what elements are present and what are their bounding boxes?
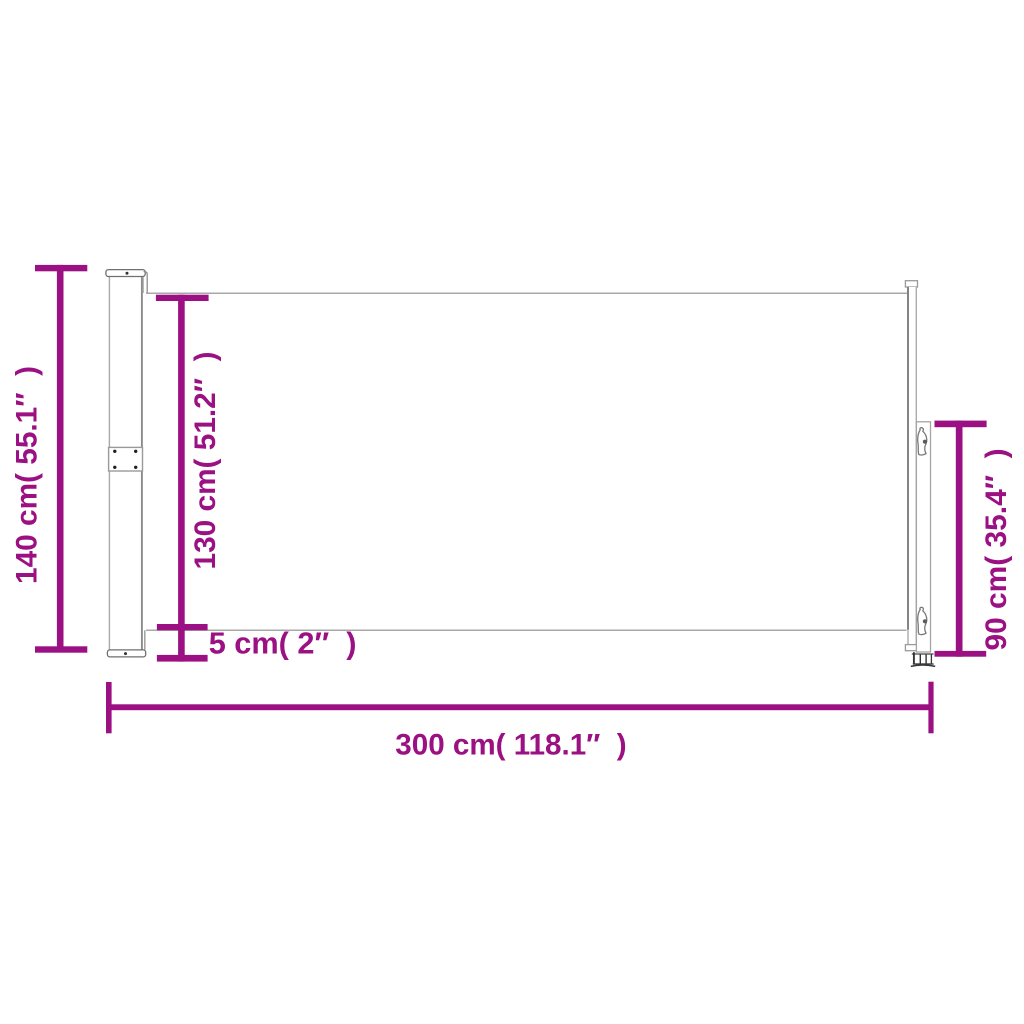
svg-text:130 cm( 51.2″ ): 130 cm( 51.2″ ) xyxy=(189,351,222,569)
svg-text:5 cm( 2″ ): 5 cm( 2″ ) xyxy=(209,626,357,661)
svg-text:140 cm( 55.1″ ): 140 cm( 55.1″ ) xyxy=(10,366,43,584)
svg-text:90 cm( 35.4″ ): 90 cm( 35.4″ ) xyxy=(980,448,1013,650)
svg-text:300 cm( 118.1″ ): 300 cm( 118.1″ ) xyxy=(395,728,626,761)
